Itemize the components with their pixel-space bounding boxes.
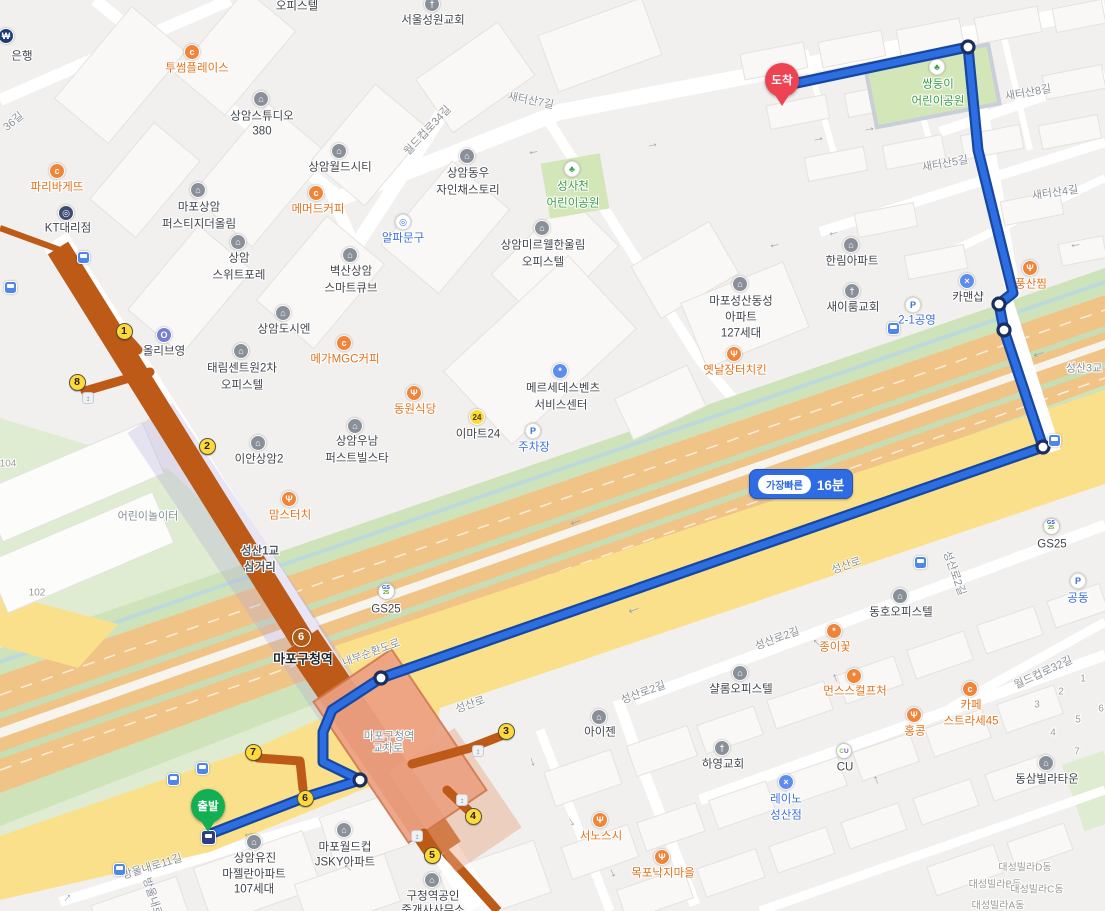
map-canvas[interactable]: ₩ 은행 c 투썸플레이스 오피스텔 † 서울성원교회 ⌂ 상암스튜디오 380… (0, 0, 1105, 911)
exit-1-badge[interactable]: 1 (116, 323, 133, 340)
exit-6-badge[interactable]: 6 (297, 790, 314, 807)
bus-stop-icon[interactable] (4, 281, 17, 294)
exit-7-badge[interactable]: 7 (245, 744, 262, 761)
exit-4-badge[interactable]: 4 (465, 808, 482, 825)
bus-stop-icon[interactable] (1048, 434, 1061, 447)
bus-stop-icon[interactable] (196, 762, 209, 775)
exit-8-badge[interactable]: 8 (69, 374, 86, 391)
subway-line-6-badge[interactable]: 6 (292, 628, 311, 647)
fastest-label: 가장빠른 (758, 475, 811, 494)
end-marker-label: 도착 (771, 72, 792, 88)
bus-stop-icon[interactable] (887, 322, 900, 335)
fastest-route-badge[interactable]: 가장빠른 16분 (749, 469, 853, 499)
exit-5-badge[interactable]: 5 (424, 847, 441, 864)
route-time: 16분 (817, 474, 844, 494)
bus-stop-icon[interactable] (167, 773, 180, 786)
exit-2-badge[interactable]: 2 (199, 438, 216, 455)
bus-stop-icon[interactable] (914, 556, 927, 569)
start-marker[interactable]: 출발 (191, 789, 225, 823)
end-marker[interactable]: 도착 (765, 63, 799, 97)
start-marker-label: 출발 (197, 798, 218, 814)
bus-stop-icon[interactable] (77, 251, 90, 264)
bus-stop-icon[interactable] (113, 863, 126, 876)
exit-3-badge[interactable]: 3 (498, 723, 515, 740)
